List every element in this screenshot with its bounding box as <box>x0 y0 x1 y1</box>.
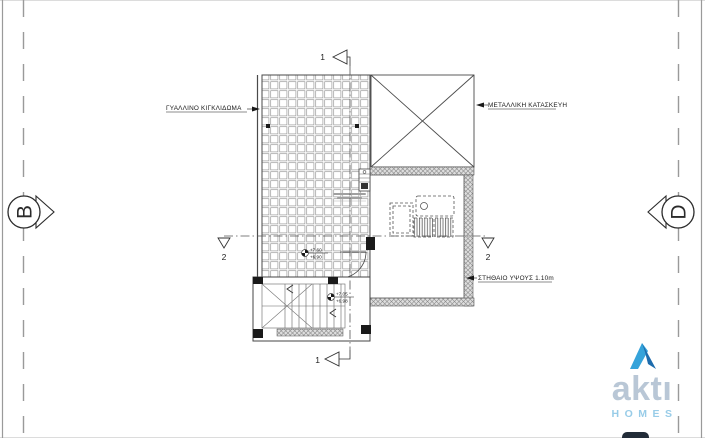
fixture-core <box>361 183 368 189</box>
logo-name: aktı <box>596 372 688 406</box>
staircase <box>253 277 371 341</box>
section-flag-2-right <box>482 238 494 248</box>
column <box>328 277 338 284</box>
section-flag-1-bottom-hook <box>339 350 350 359</box>
logo-tagline: HOMES <box>596 409 688 420</box>
arrowhead-left-icon <box>476 103 484 108</box>
glass-railing-text: ΓΥΑΛΛΙΝΟ ΚΙΓΚΛΙΔΩΜΑ <box>166 105 242 112</box>
drawing-sheet: 1 1 2 2 ΓΥΑΛΛΙΝΟ ΚΙΓΚΛΙΔΩΜΑ ΜΕΤΑΛΛΙΚΗ ΚΑ… <box>0 0 705 438</box>
section-cut-number: 1 <box>315 355 320 365</box>
label-parapet: ΣΤΗΘΑΙΟ ΥΨΟΥΣ 1.10m <box>466 275 554 282</box>
wall-right-parapet <box>464 175 473 306</box>
section-cut-number: 1 <box>320 52 325 62</box>
logo-mark-icon <box>625 342 659 370</box>
boiler-tank <box>416 196 454 216</box>
column <box>253 329 263 338</box>
section-flag-1-top <box>333 50 347 64</box>
level-value: +7.05 <box>336 292 348 297</box>
door-pier <box>366 237 375 250</box>
rooftop-equipment <box>390 196 454 237</box>
railing-post <box>266 124 270 128</box>
arrowhead-right-icon <box>252 107 260 112</box>
section-cut-number: 2 <box>222 252 227 262</box>
equipment-box-inner <box>393 206 410 233</box>
solar-panel <box>414 218 433 237</box>
column <box>253 277 263 284</box>
equipment-box <box>390 203 413 236</box>
section-marker-b: B <box>8 196 54 228</box>
section-marker-d: D <box>648 196 694 228</box>
tiny-annotation-text <box>337 197 362 199</box>
label-metal-construction: ΜΕΤΑΛΛΙΚΗ ΚΑΤΑΣΚΕΥΗ <box>476 102 567 109</box>
wall-top <box>370 167 474 175</box>
tiny-annotation-text <box>333 193 366 195</box>
logo-mark-left <box>630 343 648 369</box>
level-value: +6.98 <box>336 299 348 304</box>
metal-structure-box <box>371 75 474 167</box>
level-value: +7.60 <box>310 248 322 253</box>
section-flag-2-left <box>218 238 230 248</box>
section-cut-number: 2 <box>486 252 491 262</box>
wall-bottom <box>368 298 474 306</box>
level-value: +6.90 <box>310 255 322 260</box>
company-logo: aktı HOMES <box>596 342 688 420</box>
label-glass-railing: ΓΥΑΛΛΙΝΟ ΚΙΓΚΛΙΔΩΜΑ <box>166 105 260 112</box>
railing-post <box>355 124 359 128</box>
marker-d-letter: D <box>668 204 691 219</box>
stair-bottom-wall <box>277 329 343 336</box>
solar-panel <box>435 218 453 237</box>
parapet-text: ΣΤΗΘΑΙΟ ΥΨΟΥΣ 1.10m <box>478 275 554 282</box>
metal-construction-text: ΜΕΤΑΛΛΙΚΗ ΚΑΤΑΣΚΕΥΗ <box>488 102 567 109</box>
column <box>361 325 371 334</box>
marker-b-letter: B <box>14 205 37 219</box>
partial-stamp-shape <box>622 432 649 438</box>
boiler-cap <box>421 203 428 210</box>
section-flag-1-bottom <box>325 352 339 366</box>
